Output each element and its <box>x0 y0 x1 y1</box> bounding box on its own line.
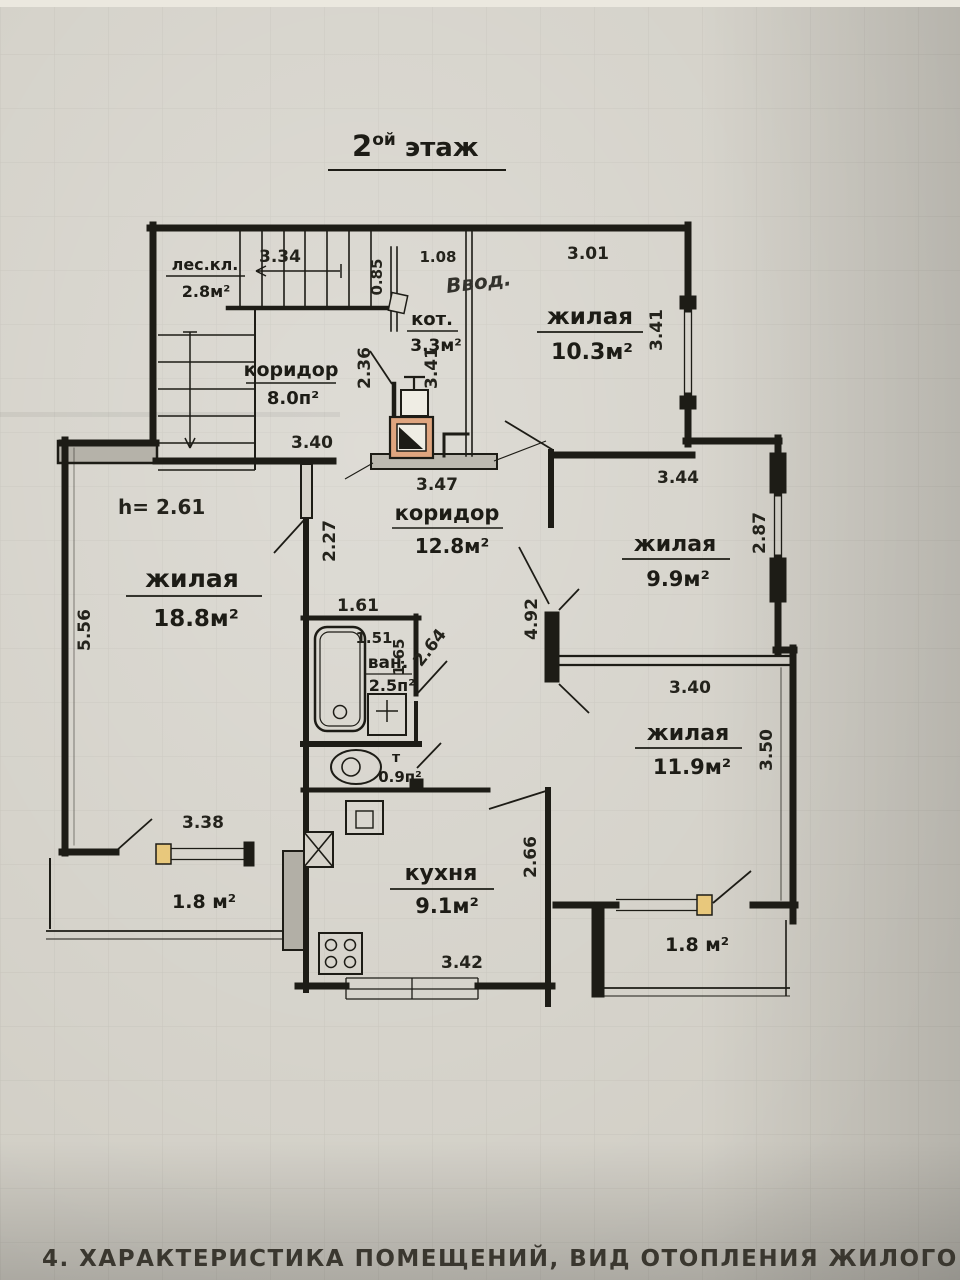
dim-living-top-depth: 3.41 <box>647 309 667 351</box>
kitchen-name: кухня <box>405 861 478 886</box>
floor-word: этаж <box>405 133 479 163</box>
dim-bath-width: 1.61 <box>337 596 379 616</box>
scanned-floor-plan-photo: 2ойэтаж <box>0 0 960 1280</box>
toilet-name: т <box>392 750 401 766</box>
wall-stub-doors <box>545 612 559 682</box>
ceiling-height-note: h= 2.61 <box>118 495 205 519</box>
window-accent-left <box>156 844 171 864</box>
wall-pier-balcony-left <box>283 851 304 950</box>
dim-balcony-left-width: 3.38 <box>182 813 224 833</box>
balcony-left-area: 1.8 м² <box>172 891 236 913</box>
window-sill-d <box>770 558 786 602</box>
floor-title-text: 2ойэтаж <box>352 129 479 163</box>
stairwell-area: 2.8м² <box>182 282 230 301</box>
floor-suffix: ой <box>372 130 396 150</box>
balcony-right-pier <box>592 905 604 997</box>
living-right-name: жилая <box>634 532 716 557</box>
kitchen-area: 9.1м² <box>415 894 479 918</box>
living-bottom-name: жилая <box>647 721 729 746</box>
dim-living-top-width: 3.01 <box>567 244 609 264</box>
toilet-area: 0.9п² <box>378 768 422 786</box>
dim-stove-platform: 3.47 <box>416 475 458 495</box>
dim-living-left-width: 3.40 <box>291 433 333 453</box>
dim-living-right-depth: 2.87 <box>750 512 770 554</box>
window-accent-right <box>697 895 712 915</box>
section-caption: 4. ХАРАКТЕРИСТИКА ПОМЕЩЕНИЙ, ВИД ОТОПЛЕН… <box>42 1244 960 1272</box>
dim-living-bottom-width: 3.40 <box>669 678 711 698</box>
floor-number: 2 <box>352 129 372 163</box>
living-left-area: 18.8м² <box>153 606 239 632</box>
balcony-right-area: 1.8 м² <box>665 934 729 956</box>
dim-living-bottom-depth: 3.50 <box>757 729 777 771</box>
dim-entry-width: 1.08 <box>419 248 456 266</box>
door-leaf-living-left <box>301 464 312 518</box>
corridor-upper-area: 8.0п² <box>267 388 319 409</box>
dim-kitchen-width: 3.42 <box>441 953 483 973</box>
corridor-upper-name: коридор <box>244 359 339 381</box>
living-left-name: жилая <box>145 564 239 593</box>
corridor-main-name: коридор <box>395 501 500 525</box>
dim-stair-flight: 3.34 <box>259 247 301 267</box>
stairwell-name: лес.кл. <box>172 255 239 274</box>
dim-corridor-nook: 2.36 <box>355 347 375 389</box>
dim-living-left-depth: 5.56 <box>75 609 95 651</box>
dim-bath-inner-depth: 1.65 <box>390 638 408 675</box>
paper-background <box>0 0 960 1280</box>
living-bottom-area: 11.9м² <box>653 755 731 779</box>
living-top-name: жилая <box>547 304 633 330</box>
ventilation-shaft <box>304 832 333 867</box>
window-sill-a <box>680 296 696 309</box>
dim-entry-gap: 0.85 <box>368 258 386 295</box>
dim-boiler-depth: 3.41 <box>422 347 442 389</box>
floor-plan-svg: 2ойэтаж <box>0 0 960 1280</box>
bathroom-area: 2.5п² <box>369 676 415 695</box>
window-sill-c <box>770 453 786 493</box>
corridor-main-area: 12.8м² <box>415 534 489 558</box>
dim-bath-inner-width: 1.51 <box>355 629 392 647</box>
living-top-area: 10.3м² <box>551 340 633 365</box>
dim-corridor-depth: 4.92 <box>522 598 542 640</box>
gas-meter-box <box>388 293 407 314</box>
living-right-area: 9.9м² <box>646 567 710 591</box>
dim-living-right-width: 3.44 <box>657 468 699 488</box>
window-sill-b <box>680 396 696 409</box>
window-sill-e <box>244 842 254 866</box>
boiler-name: кот. <box>411 309 453 330</box>
dim-kitchen-depth: 2.66 <box>521 836 541 878</box>
dim-living-left-door: 2.27 <box>320 520 340 562</box>
